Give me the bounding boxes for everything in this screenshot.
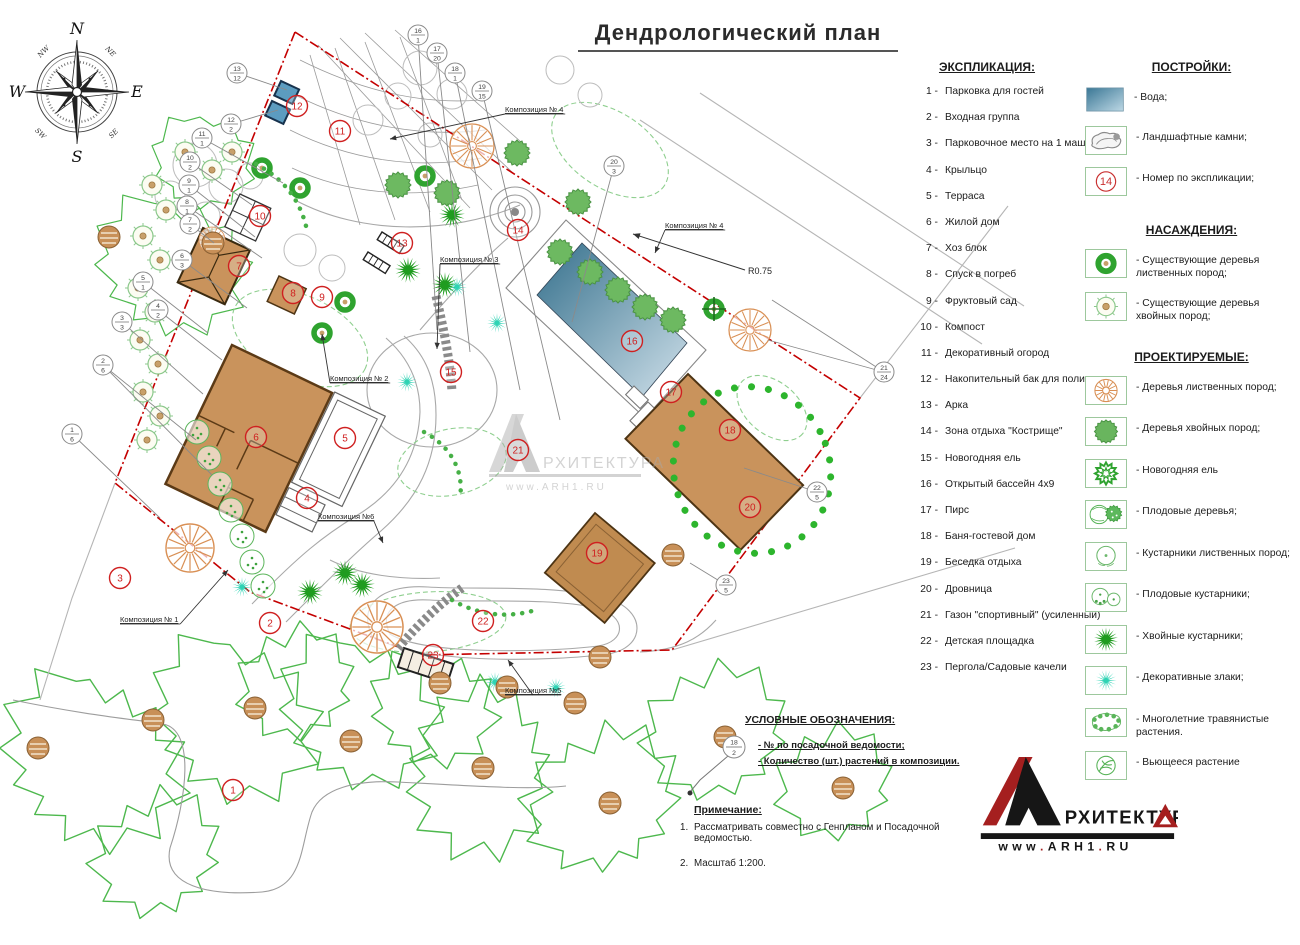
svg-text:17: 17 xyxy=(433,46,441,53)
symbols-heading: УСЛОВНЫЕ ОБОЗНАЧЕНИЯ: xyxy=(745,714,935,726)
svg-text:Композиция № 4: Композиция № 4 xyxy=(665,221,723,230)
conifer-tree-icon xyxy=(1085,417,1127,446)
svg-text:Композиция №5: Композиция №5 xyxy=(505,686,561,695)
svg-text:1: 1 xyxy=(453,76,457,83)
explication-item: 17 -Пирс xyxy=(912,505,1087,516)
compass-sw: SW xyxy=(33,127,48,142)
svg-text:13: 13 xyxy=(233,66,241,73)
plan-marker: 21 xyxy=(508,440,529,461)
conifer-shrub-icon xyxy=(1085,625,1127,654)
plan-marker: 10 xyxy=(250,206,271,227)
legend-item-label: - Деревья хвойных пород; xyxy=(1136,417,1260,435)
explication-item: 6 -Жилой дом xyxy=(912,217,1087,228)
legend-item: - Многолетние травянистые растения. xyxy=(1085,708,1298,739)
symbols-block: УСЛОВНЫЕ ОБОЗНАЧЕНИЯ: - № по посадочной … xyxy=(700,714,935,726)
compass-se: SE xyxy=(107,127,120,140)
explication-item: 5 -Терраса xyxy=(912,191,1087,202)
legend-item-label: - Номер по экспликации; xyxy=(1136,167,1254,185)
explication-item-label: Новогодняя ель xyxy=(945,453,1021,464)
plan-marker: 19 xyxy=(587,543,608,564)
compass-nw: NW xyxy=(35,44,51,60)
svg-text:9: 9 xyxy=(319,293,325,304)
notes-block: Примечание: 1.Рассматривать совместно с … xyxy=(680,804,940,883)
legend-item-label: - Вода; xyxy=(1134,86,1167,104)
explication-item: 1 -Парковка для гостей xyxy=(912,86,1087,97)
explication-item: 19 -Беседка отдыха xyxy=(912,557,1087,568)
explication-item-label: Открытый бассейн 4х9 xyxy=(945,479,1054,490)
explication-item: 7 -Хоз блок xyxy=(912,243,1087,254)
note-item: 1.Рассматривать совместно с Генпланом и … xyxy=(680,822,940,844)
svg-text:9: 9 xyxy=(187,178,191,185)
plan-marker: 11 xyxy=(330,121,351,142)
svg-text:12: 12 xyxy=(227,117,235,124)
svg-text:1: 1 xyxy=(416,38,420,45)
plan-marker: 1 xyxy=(223,780,244,801)
water-icon xyxy=(1085,86,1125,113)
svg-text:Композиция № 3: Композиция № 3 xyxy=(440,255,498,264)
stepping-stone-paths xyxy=(398,296,462,648)
svg-text:11: 11 xyxy=(335,127,346,138)
svg-text:20: 20 xyxy=(433,56,441,63)
explication-item: 12 -Накопительный бак для полива xyxy=(912,374,1087,385)
svg-text:15: 15 xyxy=(445,368,457,379)
compass-w: W xyxy=(9,82,27,101)
company-logo: РХИТЕКТУР www.ARH1.RU xyxy=(973,745,1178,853)
svg-text:3: 3 xyxy=(117,574,123,585)
plan-marker: 22 xyxy=(473,611,494,632)
explication-item-label: Дровница xyxy=(945,584,992,595)
svg-text:Композиция № 2: Композиция № 2 xyxy=(330,374,388,383)
plan-marker: 14 xyxy=(508,220,529,241)
svg-text:6: 6 xyxy=(180,253,184,260)
composition-label: Композиция № 2 xyxy=(322,334,390,383)
svg-text:12: 12 xyxy=(233,76,241,83)
svg-text:2: 2 xyxy=(188,165,192,172)
composition-label: Композиция № 1 xyxy=(120,570,228,624)
svg-text:22: 22 xyxy=(477,617,489,628)
svg-text:1: 1 xyxy=(141,285,145,292)
explication-item-label: Парковка для гостей xyxy=(945,86,1044,97)
explication-item: 9 -Фруктовый сад xyxy=(912,296,1087,307)
planting-callout: 33 xyxy=(112,312,203,394)
svg-text:21: 21 xyxy=(880,365,888,372)
svg-text:17: 17 xyxy=(665,388,677,399)
svg-text:7: 7 xyxy=(188,217,192,224)
composition-label: Композиция № 4 xyxy=(655,221,725,253)
legend-item-label: - Хвойные кустарники; xyxy=(1136,625,1243,643)
note-item: 2.Масштаб 1:200. xyxy=(680,858,940,869)
explication-item: 3 -Парковочное место на 1 машину xyxy=(912,138,1087,149)
explication-item: 11 -Декоративный огород xyxy=(912,348,1087,359)
explication-item-label: Газон "спортивный" (усиленный) xyxy=(945,610,1100,621)
svg-text:14: 14 xyxy=(512,226,524,237)
plan-marker: 8 xyxy=(283,283,304,304)
legend-item: - Хвойные кустарники; xyxy=(1085,625,1298,654)
dendrological-plan-sheet: Дендрологический план xyxy=(0,0,1300,945)
existing-conifer-tree-icon xyxy=(1085,292,1127,321)
svg-text:5: 5 xyxy=(815,495,819,502)
explication-item-number: 23 - xyxy=(912,662,938,673)
legend-item: - Кустарники лиственных пород; xyxy=(1085,542,1298,571)
explication-list: 1 -Парковка для гостей2 -Входная группа3… xyxy=(912,86,1087,673)
compass-rose: N E S W NE SE SW NW xyxy=(9,19,143,166)
legend-item: 14- Номер по экспликации; xyxy=(1085,167,1298,196)
explication-item-number: 20 - xyxy=(912,584,938,595)
svg-text:1: 1 xyxy=(200,141,204,148)
explication-item-number: 1 - xyxy=(912,86,938,97)
svg-text:www.ARH1.RU: www.ARH1.RU xyxy=(505,482,607,493)
svg-text:11: 11 xyxy=(198,131,205,138)
svg-text:20: 20 xyxy=(744,503,756,514)
logo-url: www.ARH1.RU xyxy=(997,840,1132,853)
ornamental-grass-icon xyxy=(1085,666,1127,695)
explication-item-label: Парковочное место на 1 машину xyxy=(945,138,1102,149)
plan-marker: 20 xyxy=(740,497,761,518)
plan-marker: 15 xyxy=(441,362,462,383)
explication-item-number: 12 - xyxy=(912,374,938,385)
explication-item: 16 -Открытый бассейн 4х9 xyxy=(912,479,1087,490)
svg-text:23: 23 xyxy=(427,651,439,662)
buildings-legend-list: - Вода;- Ландшафтные камни;14- Номер по … xyxy=(1085,86,1298,196)
legend-item: - Вода; xyxy=(1085,86,1298,113)
explication-item-label: Накопительный бак для полива xyxy=(945,374,1096,385)
explication-item-label: Фруктовый сад xyxy=(945,296,1017,307)
compass-e: E xyxy=(130,82,143,101)
svg-text:16: 16 xyxy=(414,28,422,35)
explication-item-label: Компост xyxy=(945,322,985,333)
planting-callout: 235 xyxy=(690,563,736,595)
explication-item-number: 18 - xyxy=(912,531,938,542)
notes-list: 1.Рассматривать совместно с Генпланом и … xyxy=(680,822,940,869)
explication-item-number: 10 - xyxy=(912,322,938,333)
svg-text:7: 7 xyxy=(236,262,242,273)
buildings-legend-heading: ПОСТРОЙКИ: xyxy=(1085,60,1298,74)
plan-marker: 23 xyxy=(423,645,444,666)
legend-item: - Существующие деревья хвойных пород; xyxy=(1085,292,1298,323)
legend-item: - Деревья хвойных пород; xyxy=(1085,417,1298,446)
planting-callout: 2124 xyxy=(768,300,894,382)
new-year-spruce-icon xyxy=(1085,459,1127,488)
svg-text:2: 2 xyxy=(101,358,105,365)
fruit-shrubs-icon xyxy=(1085,583,1127,612)
svg-text:5: 5 xyxy=(724,588,728,595)
explication-item-number: 4 - xyxy=(912,165,938,176)
svg-text:6: 6 xyxy=(101,368,105,375)
plan-marker: 7 xyxy=(229,256,250,277)
compass-n: N xyxy=(69,19,85,38)
planting-group-outlines xyxy=(217,83,819,658)
explication-item-number: 13 - xyxy=(912,400,938,411)
plan-marker: 9 xyxy=(312,287,333,308)
explication-item: 8 -Спуск в погреб xyxy=(912,269,1087,280)
plan-marker: 13 xyxy=(392,233,413,254)
explication-item-label: Арка xyxy=(945,400,968,411)
plantings-legend-heading: НАСАЖДЕНИЯ: xyxy=(1085,223,1298,237)
svg-text:10: 10 xyxy=(254,212,266,223)
plan-marker: 4 xyxy=(297,488,318,509)
explication-item-label: Хоз блок xyxy=(945,243,987,254)
explication-item-number: 9 - xyxy=(912,296,938,307)
svg-text:1: 1 xyxy=(187,188,191,195)
explication-item: 15 -Новогодняя ель xyxy=(912,453,1087,464)
planting-callout: 42 xyxy=(148,300,222,360)
svg-text:2: 2 xyxy=(732,750,736,757)
plantings-legend-list: - Существующие деревья лиственных пород;… xyxy=(1085,249,1298,324)
explication-item-number: 8 - xyxy=(912,269,938,280)
explication-item-label: Крыльцо xyxy=(945,165,987,176)
legend-sample-number: 14 xyxy=(1086,168,1126,195)
explication-item-label: Зона отдыха "Кострище" xyxy=(945,426,1063,437)
explication-item: 22 -Детская площадка xyxy=(912,636,1087,647)
explication-item-label: Входная группа xyxy=(945,112,1020,123)
svg-text:Композиция №6: Композиция №6 xyxy=(318,512,374,521)
explication-item-number: 15 - xyxy=(912,453,938,464)
legend-item: - Плодовые кустарники; xyxy=(1085,583,1298,612)
explication-item-label: Пирс xyxy=(945,505,969,516)
svg-text:2: 2 xyxy=(156,313,160,320)
svg-text:2: 2 xyxy=(267,619,273,630)
svg-text:18: 18 xyxy=(730,740,738,747)
legend-item-label: - Плодовые кустарники; xyxy=(1136,583,1250,601)
explication-item-label: Беседка отдыха xyxy=(945,557,1022,568)
svg-text:19: 19 xyxy=(478,84,486,91)
svg-text:4: 4 xyxy=(304,494,310,505)
svg-text:10: 10 xyxy=(186,155,194,162)
legend-item: - Плодовые деревья; xyxy=(1085,500,1298,529)
plan-marker: 5 xyxy=(335,428,356,449)
explication-item: 14 -Зона отдыха "Кострище" xyxy=(912,426,1087,437)
plan-marker: 17 xyxy=(661,382,682,403)
explication-item-number: 14 - xyxy=(912,426,938,437)
legend-item-label: - Существующие деревья хвойных пород; xyxy=(1136,292,1298,323)
svg-text:5: 5 xyxy=(342,434,348,445)
svg-text:16: 16 xyxy=(626,337,638,348)
explication-item-number: 7 - xyxy=(912,243,938,254)
svg-text:3: 3 xyxy=(180,263,184,270)
legend-item: - Деревья лиственных пород; xyxy=(1085,376,1298,405)
explication-item-label: Пергола/Садовые качели xyxy=(945,662,1067,673)
explication-item-number: 17 - xyxy=(912,505,938,516)
compass-s: S xyxy=(72,147,83,166)
legend-item-label: - Деревья лиственных пород; xyxy=(1136,376,1277,394)
explication-item: 20 -Дровница xyxy=(912,584,1087,595)
projected-legend-list: - Деревья лиственных пород;- Деревья хво… xyxy=(1085,376,1298,781)
svg-text:23: 23 xyxy=(722,578,730,585)
explication-item: 18 -Баня-гостевой дом xyxy=(912,531,1087,542)
svg-text:Композиция № 4: Композиция № 4 xyxy=(505,105,563,114)
legend-item-label: - Декоративные злаки; xyxy=(1136,666,1244,684)
projected-legend-heading: ПРОЕКТИРУЕМЫЕ: xyxy=(1085,350,1298,364)
explication-item: 21 -Газон "спортивный" (усиленный) xyxy=(912,610,1087,621)
plan-marker: 18 xyxy=(720,420,741,441)
svg-text:19: 19 xyxy=(591,549,603,560)
explication-number-icon: 14 xyxy=(1085,167,1127,196)
notes-heading: Примечание: xyxy=(694,804,940,816)
explication-item-label: Спуск в погреб xyxy=(945,269,1016,280)
svg-text:2: 2 xyxy=(188,227,192,234)
explication-item: 2 -Входная группа xyxy=(912,112,1087,123)
svg-text:3: 3 xyxy=(120,325,124,332)
legend-item: - Новогодняя ель xyxy=(1085,459,1298,488)
explication-item-number: 21 - xyxy=(912,610,938,621)
gazebo xyxy=(545,513,655,623)
svg-text:18: 18 xyxy=(724,426,736,437)
deciduous-shrub-icon xyxy=(1085,542,1127,571)
legend-item-label: - Кустарники лиственных пород; xyxy=(1136,542,1290,560)
explication-item-number: 19 - xyxy=(912,557,938,568)
svg-text:6: 6 xyxy=(70,437,74,444)
plan-marker: 6 xyxy=(246,427,267,448)
svg-text:15: 15 xyxy=(478,94,486,101)
symbols-line-1: - № по посадочной ведомости; xyxy=(758,740,905,751)
explication-panel: ЭКСПЛИКАЦИЯ: 1 -Парковка для гостей2 -Вх… xyxy=(912,60,1087,688)
explication-item-number: 2 - xyxy=(912,112,938,123)
explication-item-label: Декоративный огород xyxy=(945,348,1049,359)
svg-text:8: 8 xyxy=(185,199,189,206)
svg-text:13: 13 xyxy=(396,239,408,250)
explication-item-number: 6 - xyxy=(912,217,938,228)
svg-text:3: 3 xyxy=(120,315,124,322)
plan-marker: 2 xyxy=(260,613,281,634)
plan-marker: 12 xyxy=(287,96,308,117)
existing-deciduous-tree-icon xyxy=(1085,249,1127,278)
deciduous-tree-icon xyxy=(1085,376,1127,405)
symbols-line-2: - Количество (шт.) растений в композиции… xyxy=(758,756,959,767)
svg-text:R0.75: R0.75 xyxy=(748,266,772,276)
explication-item-number: 3 - xyxy=(912,138,938,149)
legend-item: - Декоративные злаки; xyxy=(1085,666,1298,695)
explication-item-number: 22 - xyxy=(912,636,938,647)
legend-item-label: - Новогодняя ель xyxy=(1136,459,1218,477)
explication-item-label: Жилой дом xyxy=(945,217,1000,228)
legend-item: - Существующие деревья лиственных пород; xyxy=(1085,249,1298,280)
radius-annotation: R0.75 xyxy=(633,234,772,276)
svg-text:Композиция № 1: Композиция № 1 xyxy=(120,615,178,624)
explication-item-label: Баня-гостевой дом xyxy=(945,531,1035,542)
svg-text:4: 4 xyxy=(156,303,160,310)
explication-item-label: Детская площадка xyxy=(945,636,1034,647)
explication-item: 4 -Крыльцо xyxy=(912,165,1087,176)
svg-text:22: 22 xyxy=(813,485,821,492)
svg-text:18: 18 xyxy=(451,66,459,73)
svg-text:20: 20 xyxy=(610,159,618,166)
explication-item: 10 -Компост xyxy=(912,322,1087,333)
svg-text:21: 21 xyxy=(512,446,524,457)
explication-item: 13 -Арка xyxy=(912,400,1087,411)
svg-text:8: 8 xyxy=(290,289,296,300)
legend-item-label: - Плодовые деревья; xyxy=(1136,500,1237,518)
compass-ne: NE xyxy=(103,44,117,58)
svg-text:1: 1 xyxy=(230,786,236,797)
perennial-plants-icon xyxy=(1085,708,1127,737)
svg-text:2: 2 xyxy=(229,127,233,134)
explication-item-number: 16 - xyxy=(912,479,938,490)
composition-label: Композиция №6 xyxy=(318,512,383,543)
landscape-stones-icon xyxy=(1085,126,1127,155)
legend-panel: ПОСТРОЙКИ: - Вода;- Ландшафтные камни;14… xyxy=(1085,60,1298,793)
plan-marker: 16 xyxy=(622,331,643,352)
legend-item-label: - Многолетние травянистые растения. xyxy=(1136,708,1298,739)
legend-item: - Ландшафтные камни; xyxy=(1085,126,1298,155)
svg-text:6: 6 xyxy=(253,433,259,444)
legend-item-label: - Существующие деревья лиственных пород; xyxy=(1136,249,1298,280)
decorative-garden-beds xyxy=(290,30,530,225)
plan-marker: 3 xyxy=(110,568,131,589)
svg-text:1: 1 xyxy=(70,427,74,434)
svg-text:3: 3 xyxy=(612,169,616,176)
fruit-trees-icon xyxy=(1085,500,1127,529)
svg-text:РХИТЕКТУРА: РХИТЕКТУРА xyxy=(543,455,665,472)
explication-item: 23 -Пергола/Садовые качели xyxy=(912,662,1087,673)
explication-item-number: 11 - xyxy=(912,348,938,359)
svg-text:12: 12 xyxy=(291,102,303,113)
svg-text:24: 24 xyxy=(880,375,888,382)
explication-item-number: 5 - xyxy=(912,191,938,202)
legend-item-label: - Ландшафтные камни; xyxy=(1136,126,1247,144)
svg-text:5: 5 xyxy=(141,275,145,282)
explication-heading: ЭКСПЛИКАЦИЯ: xyxy=(912,60,1062,74)
explication-item-label: Терраса xyxy=(945,191,985,202)
